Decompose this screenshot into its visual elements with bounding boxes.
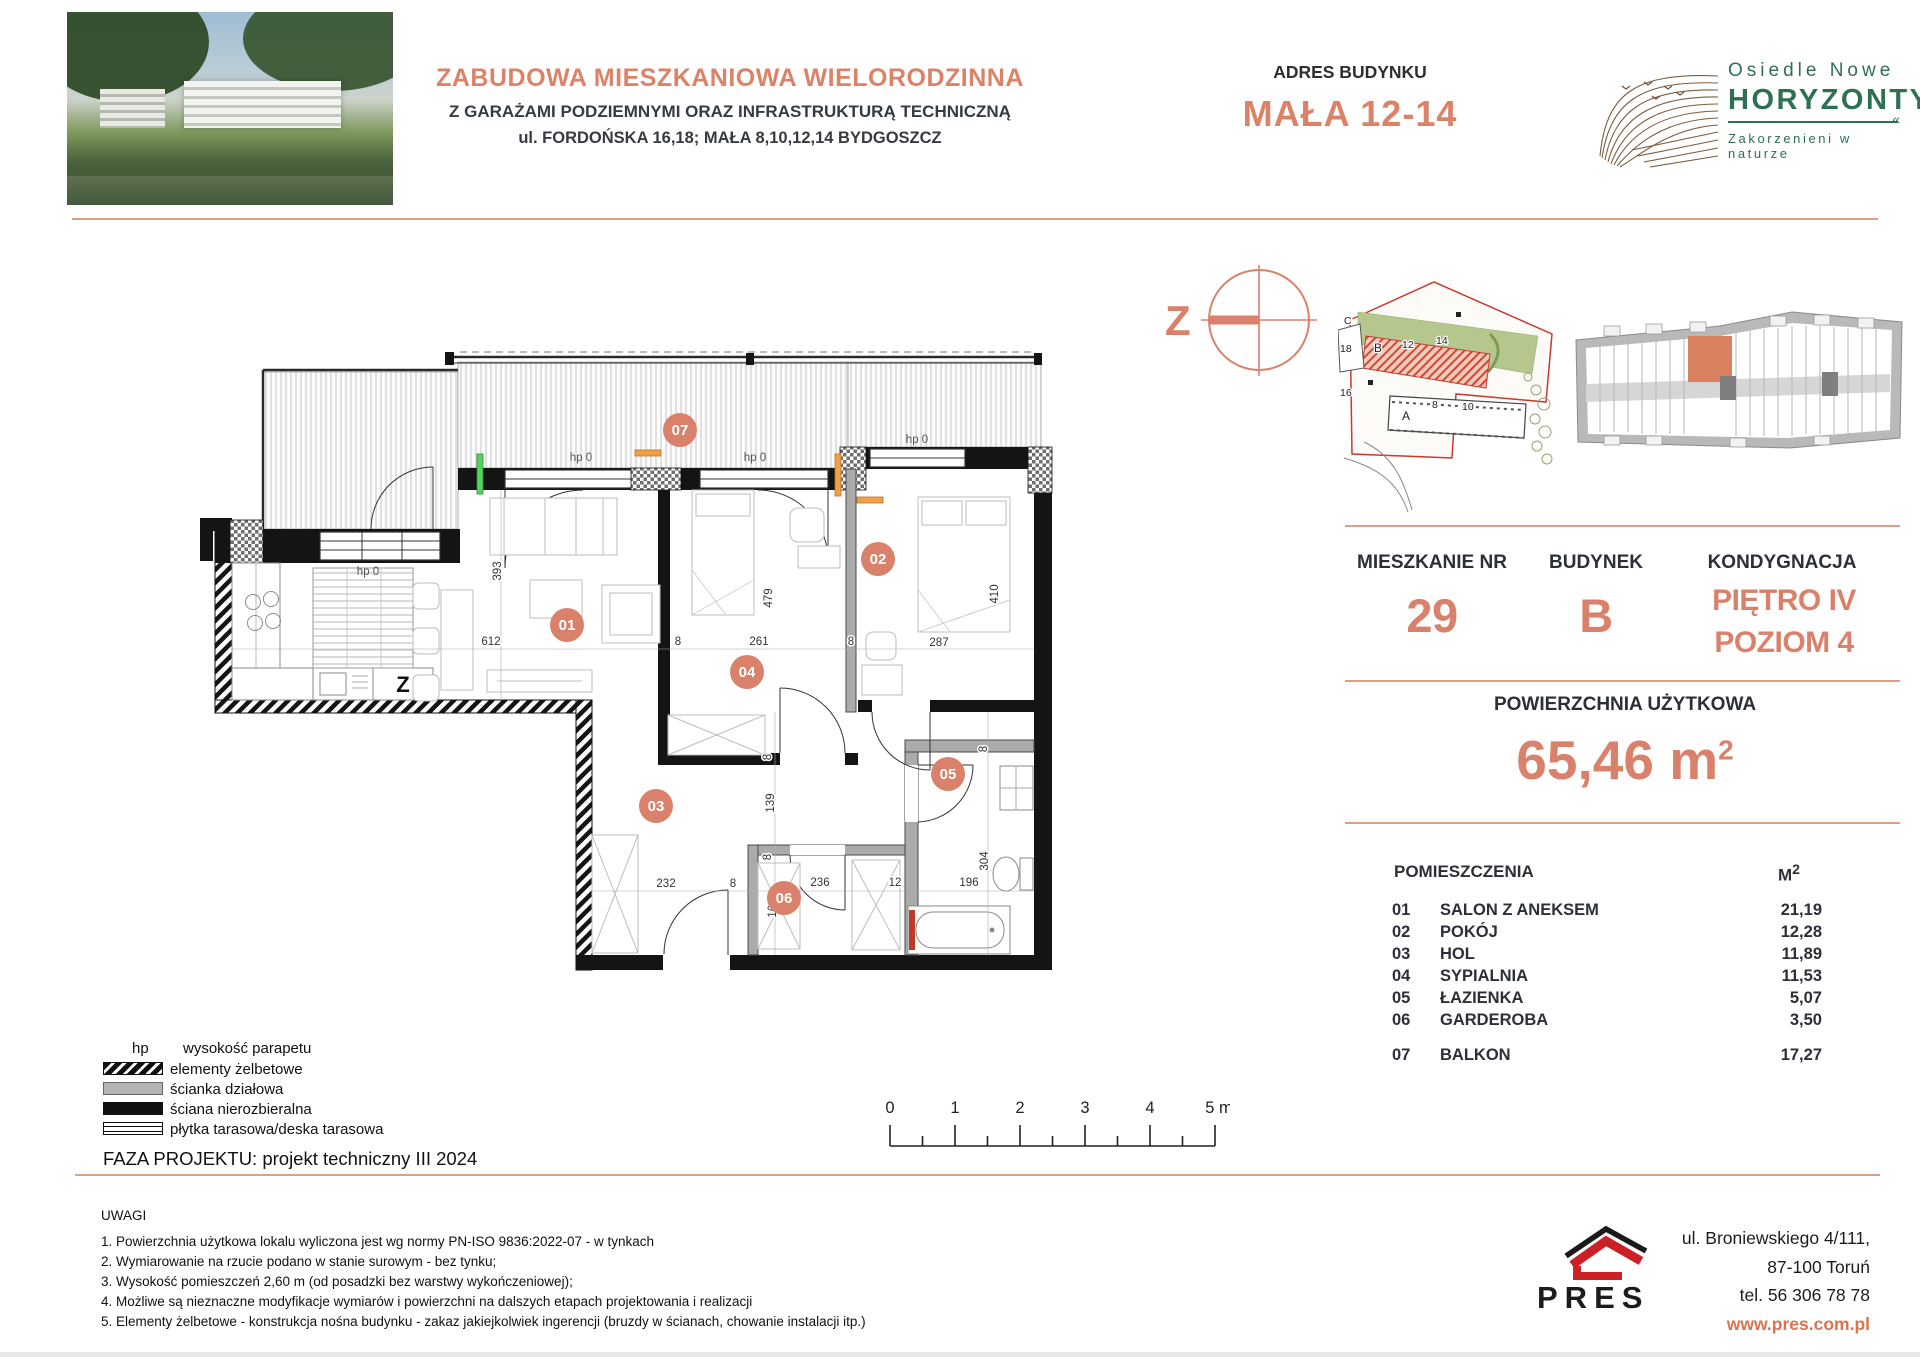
svg-text:479: 479 (763, 588, 775, 607)
estate-logo-art (1592, 56, 1722, 168)
floor-value-line1: PIĘTRO IV (1712, 584, 1856, 618)
area-number: 65,46 (1516, 729, 1654, 791)
project-phase: FAZA PROJEKTU: projekt techniczny III 20… (103, 1148, 477, 1170)
svg-text:236: 236 (810, 877, 829, 889)
room-area: 5,07 (1790, 989, 1822, 1008)
room-name: POKÓJ (1440, 923, 1498, 942)
panel-divider-3 (1345, 822, 1900, 824)
usable-area-label: POWIERZCHNIA UŻYTKOWA (1494, 694, 1756, 716)
compass-letter: Z (1165, 297, 1191, 344)
building-label: BUDYNEK (1549, 552, 1643, 574)
project-title: ZABUDOWA MIESZKANIOWA WIELORODZINNA (400, 64, 1060, 93)
project-subtitle: Z GARAŻAMI PODZIEMNYMI ORAZ INFRASTRUKTU… (400, 102, 1060, 122)
page-bottom-edge (0, 1352, 1920, 1357)
room-area: 11,53 (1782, 967, 1822, 986)
footer-address-line1: ul. Broniewskiego 4/111, (1682, 1224, 1870, 1253)
svg-text:B: B (1374, 341, 1382, 355)
north-compass: Z (1155, 264, 1320, 378)
lines-swatch (103, 1122, 163, 1135)
building-address-block: ADRES BUDYNKU MAŁA 12-14 (1180, 62, 1520, 135)
svg-text:0: 0 (885, 1099, 894, 1117)
svg-text:8: 8 (848, 636, 854, 648)
building-value: B (1579, 588, 1612, 643)
svg-text:196: 196 (959, 877, 978, 889)
pres-logo-text: PRES (1537, 1280, 1649, 1316)
svg-text:18: 18 (1340, 343, 1352, 355)
furniture (413, 490, 1010, 953)
svg-text:8: 8 (1432, 399, 1438, 411)
svg-text:8: 8 (730, 878, 736, 890)
building-address-label: ADRES BUDYNKU (1180, 62, 1520, 83)
room-no: 04 (1392, 967, 1410, 986)
floor-value-line2: POZIOM 4 (1714, 626, 1853, 660)
site-plan-mini: C 18 16 B 12 14 A 8 10 (1338, 272, 1566, 524)
panel-divider-1 (1345, 525, 1900, 527)
svg-text:hp 0: hp 0 (357, 566, 379, 578)
svg-text:A: A (1402, 409, 1410, 423)
floor-label: KONDYGNACJA (1708, 552, 1857, 574)
area-unit: m (1669, 729, 1718, 791)
footer-divider (75, 1174, 1880, 1176)
note-line: 2. Wymiarowanie na rzucie podano w stani… (101, 1252, 866, 1272)
footer-phone: tel. 56 306 78 78 (1682, 1281, 1870, 1310)
svg-text:04: 04 (739, 664, 756, 681)
svg-text:261: 261 (749, 636, 768, 648)
svg-text:10: 10 (1462, 401, 1474, 413)
svg-text:393: 393 (492, 561, 504, 580)
svg-text:232: 232 (656, 878, 675, 890)
room-no: 05 (1392, 989, 1410, 1008)
black-swatch (103, 1102, 163, 1115)
svg-text:5 m: 5 m (1205, 1099, 1230, 1117)
rooms-table-header-unit: M2 (1778, 862, 1800, 886)
hatch-swatch (103, 1062, 163, 1075)
svg-text:16: 16 (1340, 387, 1352, 399)
note-line: 1. Powierzchnia użytkowa lokalu wyliczon… (101, 1232, 866, 1252)
room-no: 01 (1392, 901, 1410, 920)
room-name: SYPIALNIA (1440, 967, 1528, 986)
svg-text:3: 3 (1080, 1099, 1089, 1117)
floor-plan-sheet: ZABUDOWA MIESZKANIOWA WIELORODZINNA Z GA… (0, 0, 1920, 1357)
room-area: 3,50 (1790, 1011, 1822, 1030)
svg-text:8: 8 (762, 754, 774, 760)
floor-strip-mini (1570, 296, 1908, 486)
apartment-floor-plan: Z (150, 250, 1070, 1040)
project-address: ul. FORDOŃSKA 16,18; MAŁA 8,10,12,14 BYD… (400, 129, 1060, 148)
pres-logo-icon (1560, 1222, 1652, 1280)
room-area: 11,89 (1782, 945, 1822, 964)
svg-text:07: 07 (672, 422, 689, 439)
bathroom-fixtures (908, 766, 1033, 954)
svg-text:12: 12 (1402, 339, 1414, 351)
apartment-number-label: MIESZKANIE NR (1357, 552, 1507, 574)
room-area: 12,28 (1781, 923, 1822, 942)
svg-text:C: C (1344, 315, 1352, 327)
footer-website-link[interactable]: www.pres.com.pl (1682, 1310, 1870, 1339)
water-photo-strip (67, 176, 393, 205)
logo-divider (1728, 121, 1898, 123)
building-photo-block (100, 89, 165, 128)
svg-text:hp 0: hp 0 (906, 434, 928, 446)
note-line: 5. Elementy żelbetowe - konstrukcja nośn… (101, 1312, 866, 1332)
gray-swatch (103, 1082, 163, 1095)
rooms-table-header-name: POMIESZCZENIA (1394, 862, 1534, 882)
svg-text:4: 4 (1145, 1099, 1154, 1117)
svg-text:2: 2 (1015, 1099, 1024, 1117)
room-no: 03 (1392, 945, 1410, 964)
building-address-value: MAŁA 12-14 (1180, 93, 1520, 135)
footer-contact: ul. Broniewskiego 4/111, 87-100 Toruń te… (1682, 1224, 1870, 1338)
svg-text:8: 8 (675, 636, 681, 648)
building-photo-block (184, 81, 340, 127)
room-name: SALON Z ANEKSEM (1440, 901, 1599, 920)
area-unit-sup: 2 (1718, 735, 1734, 766)
notes-block: UWAGI 1. Powierzchnia użytkowa lokalu wy… (101, 1206, 866, 1332)
svg-text:410: 410 (989, 584, 1001, 603)
room-name: GARDEROBA (1440, 1011, 1548, 1030)
estate-logo-text: Osiedle Nowe HORYZONTY Zakorzenieni w na… (1728, 60, 1898, 161)
note-line: 4. Możliwe są nieznaczne modyfikacje wym… (101, 1292, 866, 1312)
svg-text:287: 287 (929, 637, 948, 649)
room-name: BALKON (1440, 1046, 1511, 1065)
logo-line1: Osiedle Nowe (1728, 60, 1898, 82)
svg-text:1: 1 (950, 1099, 959, 1117)
footer-address-line2: 87-100 Toruń (1682, 1253, 1870, 1282)
svg-text:03: 03 (648, 798, 665, 815)
svg-text:01: 01 (559, 617, 576, 634)
legend-hp-label: wysokość parapetu (183, 1040, 311, 1057)
logo-tagline: Zakorzenieni w naturze (1728, 131, 1898, 161)
svg-text:14: 14 (1436, 335, 1448, 347)
scale-bar: 0 1 2 3 4 5 m (878, 1095, 1230, 1153)
room-name: ŁAZIENKA (1440, 989, 1523, 1008)
room-no: 02 (1392, 923, 1410, 942)
apartment-number-value: 29 (1406, 588, 1457, 643)
project-title-block: ZABUDOWA MIESZKANIOWA WIELORODZINNA Z GA… (400, 64, 1060, 148)
svg-text:hp 0: hp 0 (570, 452, 592, 464)
tree-blob (243, 12, 393, 91)
room-area: 21,19 (1781, 901, 1822, 920)
svg-text:06: 06 (776, 890, 793, 907)
svg-text:8: 8 (978, 746, 990, 752)
svg-text:12: 12 (889, 877, 902, 889)
svg-text:612: 612 (481, 636, 500, 648)
svg-text:8: 8 (762, 854, 774, 860)
notes-title: UWAGI (101, 1206, 866, 1226)
development-photo (67, 12, 393, 205)
room-name: HOL (1440, 945, 1475, 964)
room-area: 17,27 (1781, 1046, 1822, 1065)
legend-hp-symbol: hp (132, 1040, 149, 1057)
svg-text:02: 02 (870, 551, 887, 568)
svg-text:05: 05 (940, 766, 957, 783)
logo-line2: HORYZONTY (1728, 84, 1898, 117)
note-line: 3. Wysokość pomieszczeń 2,60 m (od posad… (101, 1272, 866, 1292)
svg-text:hp 0: hp 0 (744, 452, 766, 464)
room-no: 07 (1392, 1046, 1410, 1065)
kitchen-z-symbol: Z (396, 672, 409, 697)
room-no: 06 (1392, 1011, 1410, 1030)
usable-area-value: 65,46 m2 (1516, 728, 1733, 792)
svg-text:139: 139 (765, 793, 777, 812)
panel-divider-2 (1345, 680, 1900, 682)
svg-text:304: 304 (979, 851, 991, 871)
header-divider (72, 218, 1878, 220)
